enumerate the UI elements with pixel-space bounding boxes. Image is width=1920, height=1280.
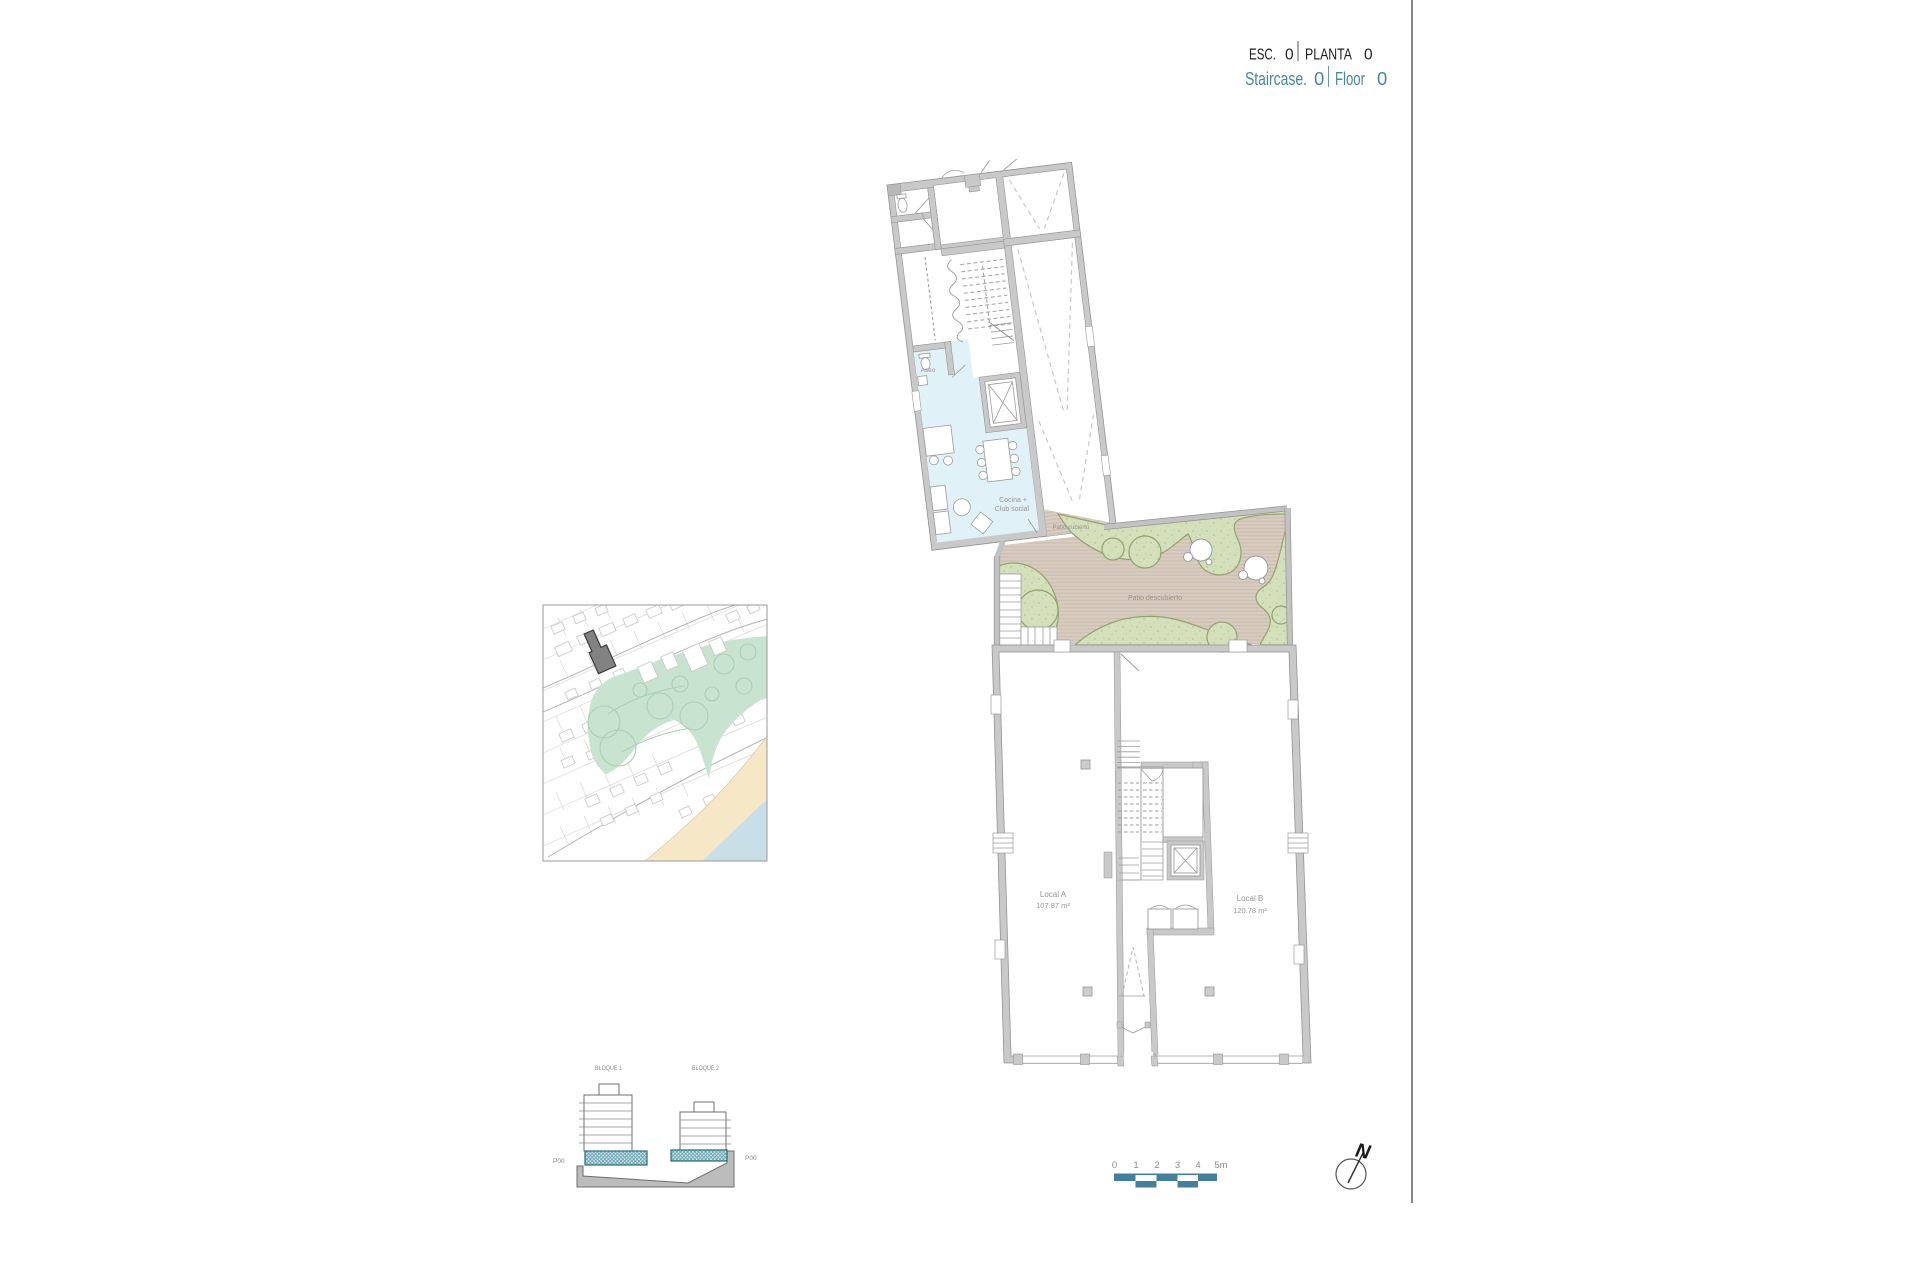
svg-text:BLOQUE 1: BLOQUE 1 [595,1065,622,1072]
svg-text:0: 0 [1364,47,1373,64]
svg-text:P00: P00 [745,1155,757,1162]
svg-text:Patio cubierto: Patio cubierto [1053,525,1090,531]
svg-text:BLOQUE 2: BLOQUE 2 [692,1065,719,1072]
svg-text:P00: P00 [553,1158,565,1165]
svg-text:ESC.: ESC. [1249,47,1276,64]
svg-text:1: 1 [1133,1160,1138,1171]
svg-text:0: 0 [1377,68,1387,89]
svg-text:Local A: Local A [1040,890,1067,899]
svg-text:Staircase.: Staircase. [1245,68,1307,89]
svg-text:5m: 5m [1214,1160,1227,1171]
svg-text:Aseo: Aseo [921,367,936,374]
svg-text:Floor: Floor [1335,68,1365,89]
svg-text:Cocina +: Cocina + [999,497,1027,504]
svg-text:3: 3 [1175,1160,1180,1171]
svg-text:0: 0 [1285,47,1294,64]
svg-text:Patio descubierto: Patio descubierto [1128,595,1182,602]
svg-text:0: 0 [1112,1160,1117,1171]
svg-text:PLANTA: PLANTA [1305,47,1353,64]
svg-text:0: 0 [1314,68,1324,89]
svg-text:120.78 m²: 120.78 m² [1233,906,1267,915]
svg-text:Local B: Local B [1237,894,1264,903]
svg-text:Club social: Club social [995,506,1030,513]
svg-text:4: 4 [1195,1160,1200,1171]
svg-text:107.87 m²: 107.87 m² [1036,901,1070,910]
svg-text:2: 2 [1154,1160,1159,1171]
